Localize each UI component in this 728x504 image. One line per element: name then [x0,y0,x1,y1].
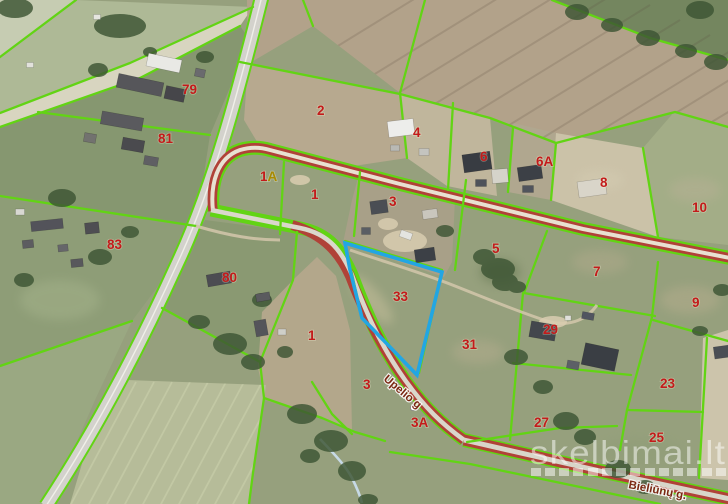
map-screenshot: 79 81 83 80 2 4 6 6A 8 10 1A 1 3 5 7 9 3… [0,0,728,504]
parcel-label-3-upper: 3 [389,194,397,209]
parcel-label-1a-suffix: A [268,169,278,184]
parcel-label-5: 5 [492,241,500,256]
parcel-label-9: 9 [692,295,700,310]
parcel-label-80: 80 [222,270,237,285]
parcel-label-7: 7 [593,264,601,279]
parcel-label-10: 10 [692,200,707,215]
parcel-label-31: 31 [462,337,478,352]
parcel-label-1-lower: 1 [308,328,316,343]
parcel-label-81: 81 [158,131,174,146]
parcel-label-8: 8 [600,175,608,190]
parcel-label-29: 29 [543,322,558,337]
watermark-text: skelbimai.lt [530,434,726,471]
parcel-label-23: 23 [660,376,676,391]
parcel-label-1-upper: 1 [311,187,319,202]
aerial-map-canvas[interactable]: 79 81 83 80 2 4 6 6A 8 10 1A 1 3 5 7 9 3… [0,0,728,504]
parcel-label-83: 83 [107,237,123,252]
parcel-label-3a: 3A [411,415,429,430]
parcel-label-1a: 1A [260,169,278,184]
watermark: skelbimai.lt [530,434,726,476]
parcel-label-33: 33 [393,289,409,304]
parcel-label-6: 6 [480,149,488,164]
parcel-label-3-lower: 3 [363,377,371,392]
parcel-label-4: 4 [413,125,421,140]
parcel-label-79: 79 [182,82,197,97]
parcel-label-27: 27 [534,415,549,430]
parcel-label-6a: 6A [536,154,554,169]
parcel-label-2: 2 [317,103,325,118]
